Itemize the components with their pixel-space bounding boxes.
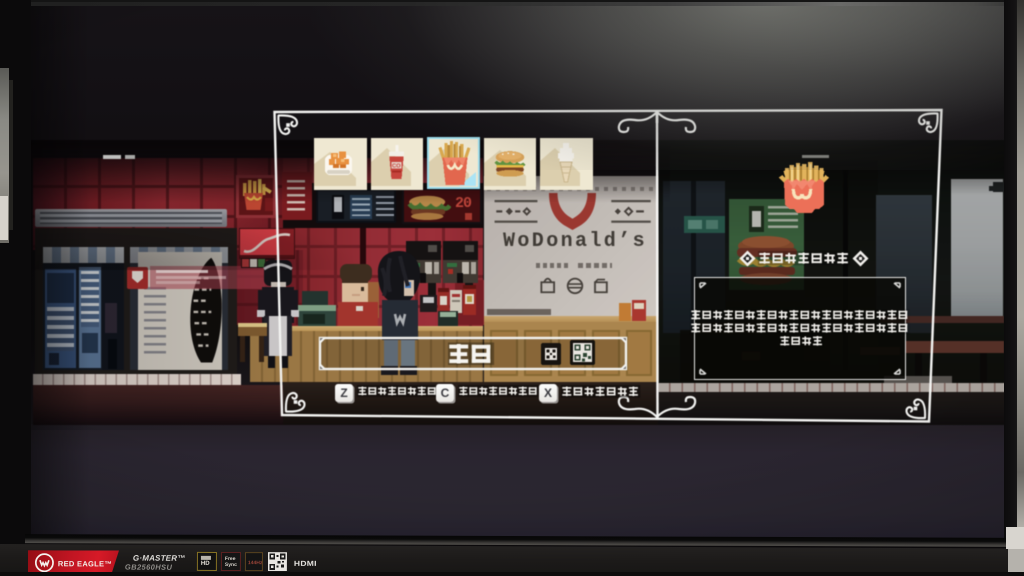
svg-text:CO: CO <box>392 163 401 169</box>
